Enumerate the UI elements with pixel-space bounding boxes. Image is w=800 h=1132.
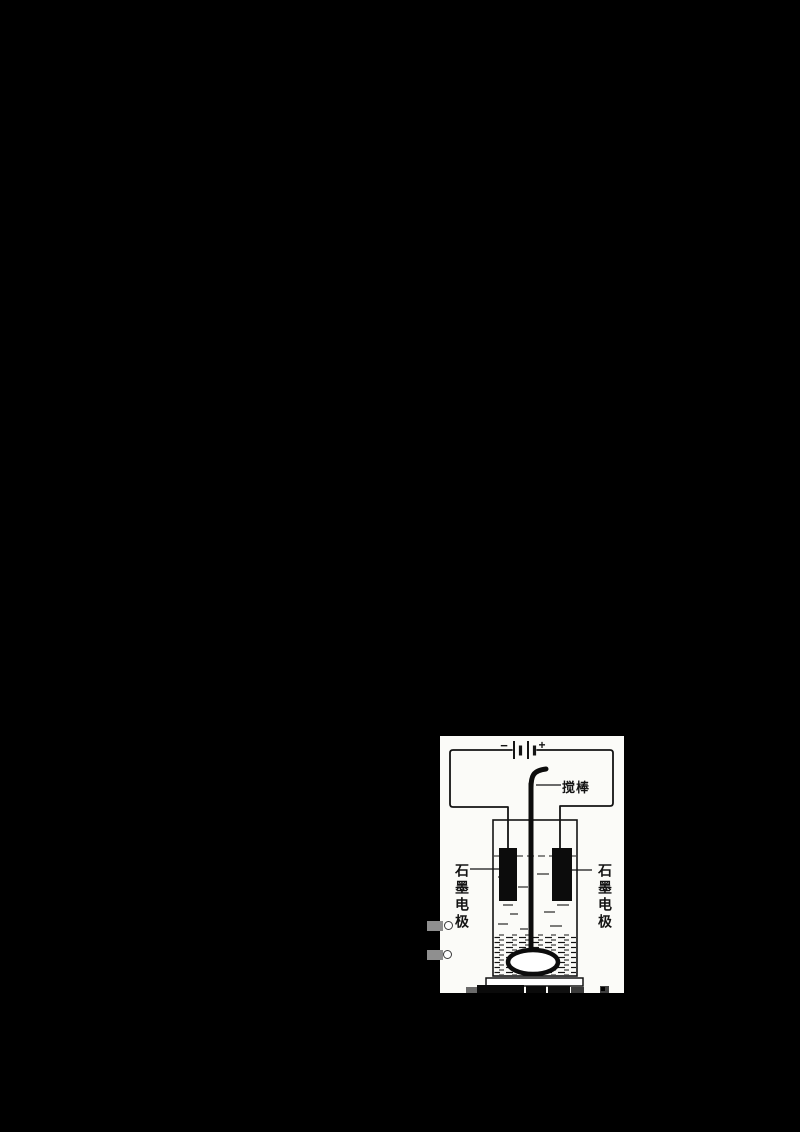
battery-minus-label: − [500,738,508,753]
figure-panel: − + [440,736,624,993]
battery-plus-label: + [538,738,545,752]
base-shadow [466,987,477,993]
base-shadow [571,987,584,993]
stir-rod-loop [508,950,558,974]
base-shadow [526,986,546,993]
stir-rod-label: 搅棒 [562,777,596,793]
scan-smudge [601,987,605,991]
scan-circle-mark [444,921,453,930]
base-shadow [477,985,524,993]
stir-rod [531,769,546,954]
scan-smudge [427,950,443,960]
right-graphite-electrode [552,848,572,901]
right-electrode-label: 石墨电极 [596,856,614,938]
left-graphite-electrode [499,848,517,901]
base-shadow [548,986,570,993]
scan-circle-mark [443,950,452,959]
battery-icon [514,741,535,759]
scan-smudge [427,921,443,931]
scanned-page: − + [0,0,800,1132]
left-electrode-label: 石墨电极 [453,856,471,938]
